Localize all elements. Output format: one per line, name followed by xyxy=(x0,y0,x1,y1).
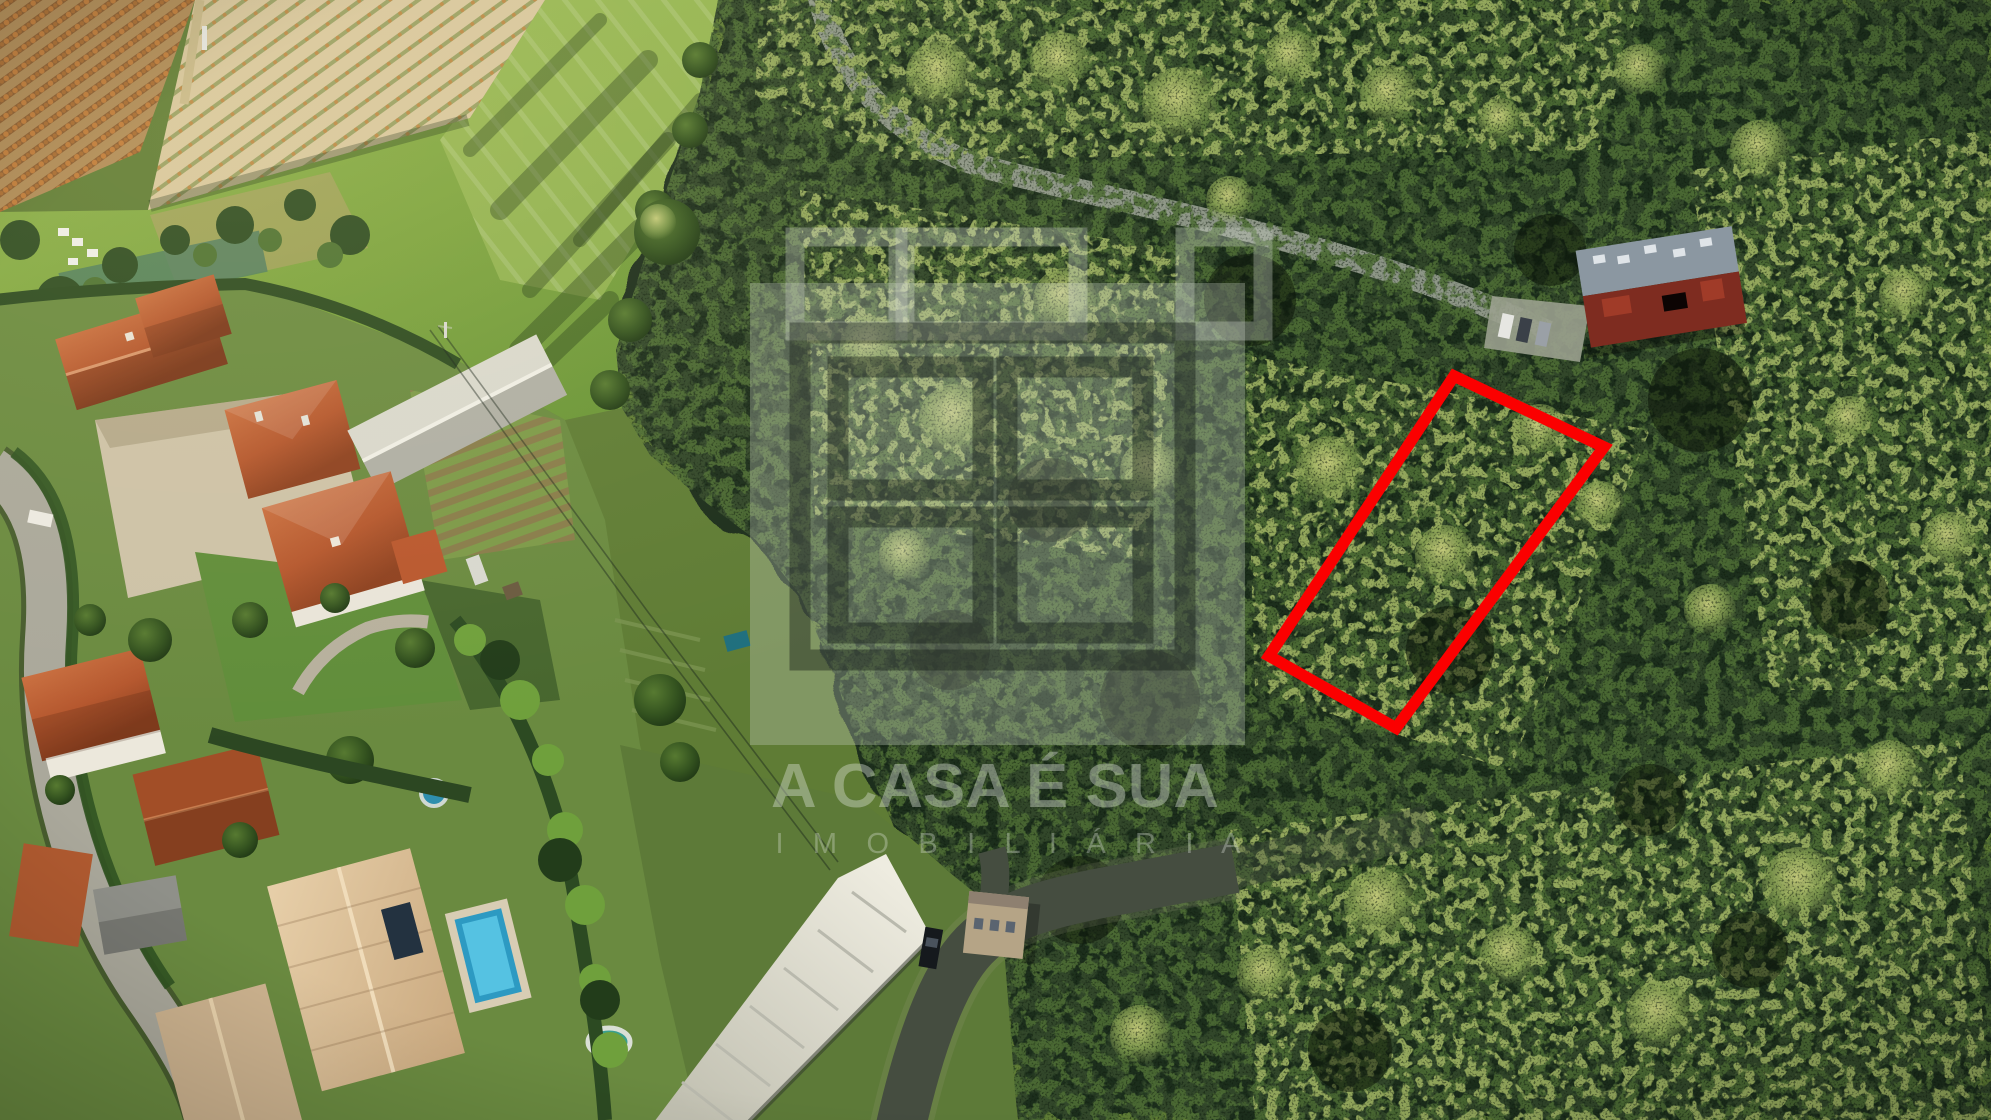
vignette-overlay xyxy=(0,0,1991,1120)
aerial-photo-canvas: A CASA É SUA I M O B I L I Á R I A xyxy=(0,0,1991,1120)
aerial-photo: A CASA É SUA I M O B I L I Á R I A xyxy=(0,0,1991,1120)
